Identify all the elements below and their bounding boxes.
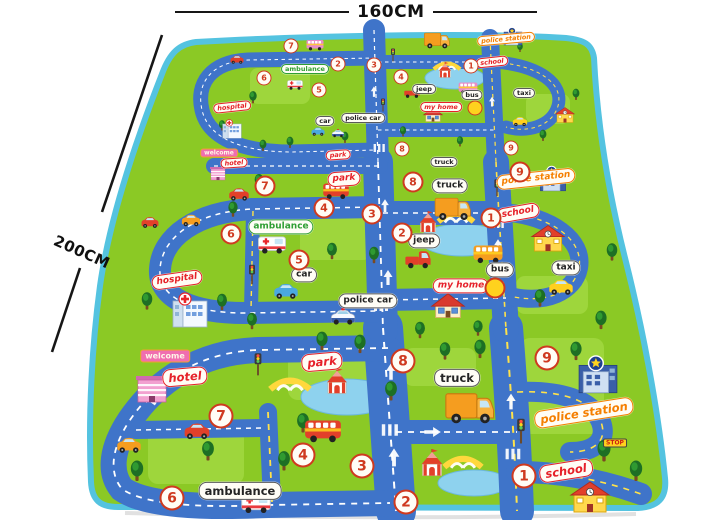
width-dimension-label: 160CM [357,2,424,22]
width-dimension-line-right [433,11,537,14]
play-mat-photo: ambulancehospitalcarpolice carwelcomehot… [0,0,726,520]
width-dimension: 160CM [175,2,537,22]
width-dimension-line-left [175,11,349,14]
